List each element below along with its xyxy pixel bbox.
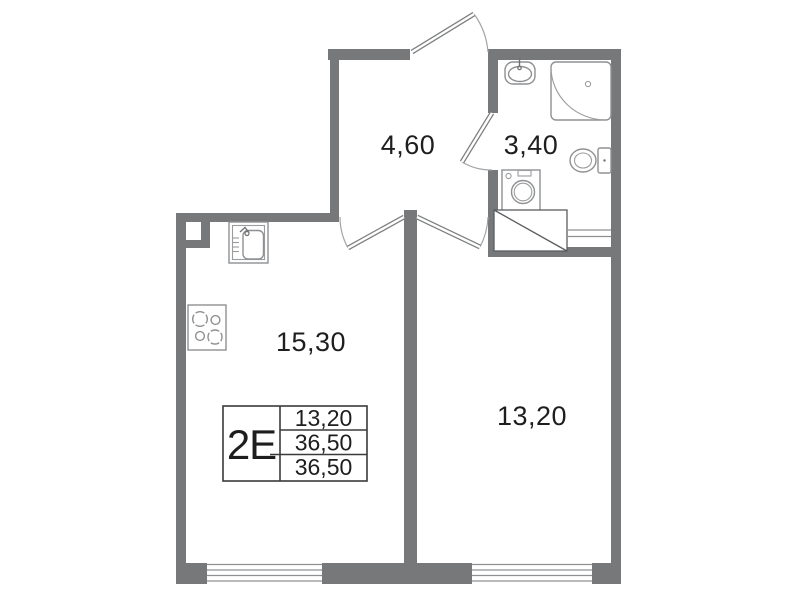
wall-livingroom-top [176,213,339,222]
window-livingroom [207,563,322,584]
wall-bottom-center-pier [322,563,472,584]
wall-hallway-left [330,49,339,222]
floor-plan: 4,60 3,40 15,30 13,20 2E 13,20 36,50 36,… [0,0,799,600]
window-bedroom [472,563,592,584]
floor-plan-svg: 4,60 3,40 15,30 13,20 2E 13,20 36,50 36,… [0,0,799,600]
legend-total-area: 36,50 [295,454,353,480]
wall-right-outer [611,49,621,584]
wall-bathroom-left-upper [488,60,498,113]
apartment-legend-table: 2E 13,20 36,50 36,50 [223,405,367,481]
room-area-bathroom: 3,40 [504,130,559,160]
washing-machine-icon [502,170,540,212]
apartment-type-label: 2E [227,421,276,468]
bathroom-sink-icon [505,58,535,84]
toilet-icon [570,148,611,173]
duct-partition [567,230,611,237]
wall-corner-niche-horizontal [186,240,210,248]
entrance-door [412,14,488,52]
room-area-kitchen-living: 15,30 [276,327,346,357]
vent-shaft-icon [494,210,567,251]
wall-left-outer [176,213,186,584]
wall-top-hallway [328,49,410,60]
livingroom-door [340,217,404,248]
bedroom-door [417,217,488,247]
room-area-hallway: 4,60 [381,130,436,160]
legend-area: 36,50 [295,430,353,456]
wall-top-bathroom [488,49,621,60]
wall-bottom-right-pier [592,563,621,584]
stove-icon [188,305,226,350]
corner-shower-icon [551,62,611,120]
bathroom-door [462,113,492,170]
kitchen-sink-icon [229,222,268,263]
legend-living-area: 13,20 [295,405,353,431]
wall-bottom-left-pier [176,563,207,584]
room-area-bedroom: 13,20 [497,401,567,431]
wall-central-partition [404,210,417,563]
